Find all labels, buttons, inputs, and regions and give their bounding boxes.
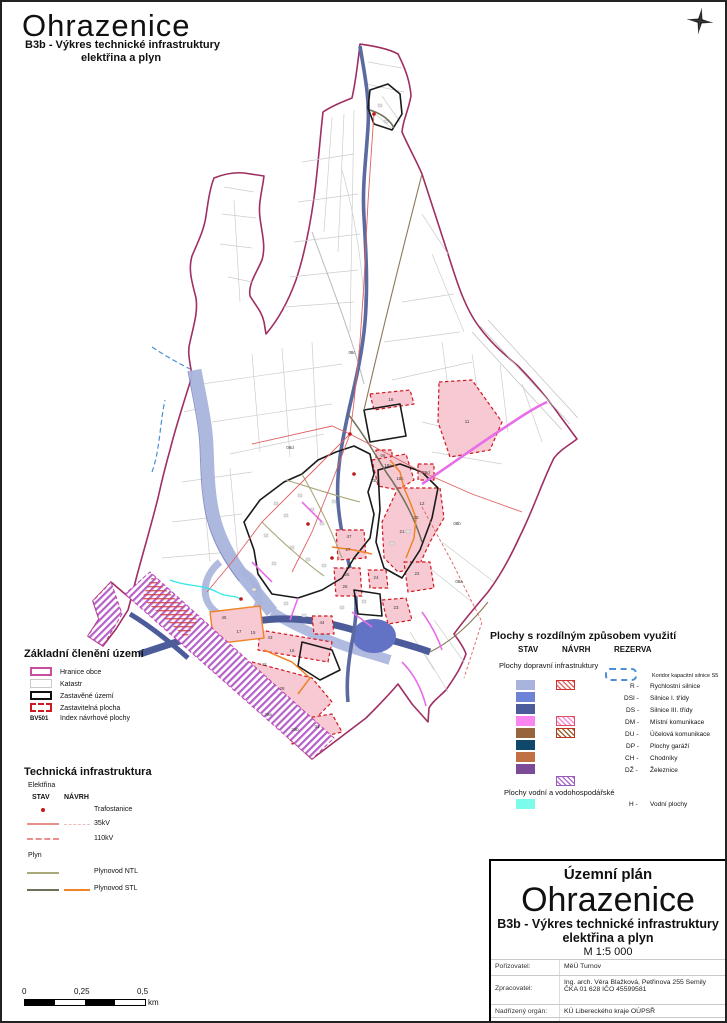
swatch-dsi-stav <box>516 692 535 702</box>
titleblock-scale: M 1:5 000 <box>491 946 725 958</box>
row-label: Pořizovatel: <box>491 960 559 975</box>
corridor-s5-swatch <box>605 668 637 681</box>
scalebar-05: 0,5 <box>137 987 148 996</box>
svg-text:25: 25 <box>345 572 350 577</box>
code-dz: DŽ - <box>625 767 638 774</box>
zastavitelna-plocha-swatch <box>30 703 52 712</box>
row-value: Zastupitelstvo Ohrazenice <box>559 1018 725 1023</box>
row-value: MěÚ Turnov <box>559 960 725 975</box>
svg-text:43: 43 <box>268 635 273 640</box>
scalebar-seg <box>85 1000 115 1005</box>
svg-text:15: 15 <box>251 630 256 635</box>
scalebar-seg <box>55 1000 85 1005</box>
svg-text:06: 06 <box>381 453 386 458</box>
swatch-r-navrh <box>556 680 575 690</box>
code-r: R - <box>630 683 639 690</box>
line-ntl <box>27 872 59 874</box>
corridor-s5-label: Koridor kapacitní silnice S5 <box>652 673 718 679</box>
label-dz: Železnice <box>650 767 678 774</box>
tech-col-stav: STAV <box>32 794 50 801</box>
code-dp: DP - <box>626 743 639 750</box>
trafostanice-symbol <box>41 808 45 812</box>
svg-text:18c: 18c <box>396 476 404 481</box>
areas-col-navrh: NÁVRH <box>562 645 590 654</box>
row-value-line2: ČKA 01 628 IČO 45599581 <box>564 986 725 993</box>
scalebar-seg <box>115 1000 145 1005</box>
zastavene-uzemi-swatch <box>30 691 52 700</box>
svg-text:47: 47 <box>347 534 352 539</box>
code-du: DU - <box>625 731 638 738</box>
plan-sheet: Ohrazenice B3b - Výkres technické infras… <box>0 0 727 1023</box>
swatch-dp-stav <box>516 740 535 750</box>
table-row: Nadřízený orgán: KÚ Libereckého kraje OÚ… <box>491 1004 725 1017</box>
tech-col-navrh: NÁVRH <box>64 794 89 801</box>
label-35kv: 35kV <box>94 820 110 827</box>
areas-col-stav: STAV <box>518 645 538 654</box>
code-dm: DM - <box>625 719 639 726</box>
zastavene-uzemi-label: Zastavěné území <box>60 693 114 700</box>
row-label: Zpracovatel: <box>491 976 559 1004</box>
svg-text:08c: 08c <box>348 350 356 355</box>
scalebar-seg <box>25 1000 55 1005</box>
swatch-r-stav <box>516 680 535 690</box>
swatch-du-stav <box>516 728 535 738</box>
line-35kv-navrh <box>64 824 90 825</box>
areas-section-transport: Plochy dopravní infrastruktury <box>499 661 598 670</box>
table-row: Schvalující orgán: Zastupitelstvo Ohraze… <box>491 1017 725 1023</box>
scalebar <box>24 999 146 1006</box>
swatch-dz-stav <box>516 764 535 774</box>
svg-text:16: 16 <box>290 648 295 653</box>
svg-text:18a: 18a <box>384 463 392 468</box>
row-value: KÚ Libereckého kraje OÚPSŘ <box>559 1005 725 1017</box>
legend-basic-title: Základní členění území <box>24 648 144 660</box>
code-ds: DS - <box>626 707 639 714</box>
legend-areas-title: Plochy s rozdílným způsobem využití <box>490 630 676 642</box>
label-ch: Chodníky <box>650 755 677 762</box>
swatch-dm-stav <box>516 716 535 726</box>
titleblock-town: Ohrazenice <box>491 883 725 917</box>
label-110kv: 110kV <box>94 835 113 842</box>
hranice-obce-label: Hranice obce <box>60 669 101 676</box>
svg-text:31: 31 <box>315 724 320 729</box>
svg-text:21: 21 <box>400 529 405 534</box>
swatch-ch-stav <box>516 752 535 762</box>
legend-tech-title: Technická infrastruktura <box>24 766 152 778</box>
scalebar-unit: km <box>148 998 159 1007</box>
swatch-dm-navrh <box>556 716 575 726</box>
index-navrhove-plochy-code: BV501 <box>30 716 48 722</box>
hranice-obce-swatch <box>30 667 52 676</box>
scalebar-025: 0,25 <box>74 987 90 996</box>
svg-text:08b: 08b <box>453 521 461 526</box>
trafostanice-label: Trafostanice <box>94 806 132 813</box>
swatch-ds-stav <box>516 704 535 714</box>
code-h: H - <box>629 801 638 808</box>
svg-text:17: 17 <box>237 629 242 634</box>
katastr-swatch <box>30 679 52 688</box>
svg-text:42: 42 <box>262 662 267 667</box>
row-value-line1: Ing. arch. Věra Blažková, Petřinova 255 … <box>564 979 725 986</box>
label-du: Účelová komunikace <box>650 731 710 738</box>
row-label: Nadřízený orgán: <box>491 1005 559 1017</box>
areas-col-rezerva: REZERVA <box>614 645 652 654</box>
svg-text:23: 23 <box>394 605 399 610</box>
svg-text:28: 28 <box>280 686 285 691</box>
katastr-label: Katastr <box>60 681 82 688</box>
label-r: Rychlostní silnice <box>650 683 700 690</box>
scalebar-0: 0 <box>22 987 26 996</box>
label-dp: Plochy garáží <box>650 743 689 750</box>
label-ds: Silnice III. třídy <box>650 707 693 714</box>
svg-text:13b: 13b <box>370 478 378 483</box>
title-block: Územní plán Ohrazenice B3b - Výkres tech… <box>489 859 725 1023</box>
plyn-group-label: Plyn <box>28 852 42 859</box>
svg-text:08d: 08d <box>286 445 294 450</box>
table-row: Zpracovatel: Ing. arch. Věra Blažková, P… <box>491 975 725 1004</box>
areas-section-water: Plochy vodní a vodohospodářské <box>504 788 615 797</box>
svg-text:45: 45 <box>222 615 227 620</box>
svg-text:29a: 29a <box>264 712 272 717</box>
titleblock-subtitle-2: elektřina a plyn <box>491 931 725 945</box>
svg-text:20: 20 <box>414 515 419 520</box>
svg-text:27: 27 <box>346 547 351 552</box>
label-h: Vodní plochy <box>650 801 687 808</box>
label-dm: Místní komunikace <box>650 719 704 726</box>
svg-text:29b: 29b <box>291 727 299 732</box>
swatch-dz-navrh <box>556 776 575 786</box>
titleblock-subtitle-1: B3b - Výkres technické infrastruktury <box>491 917 725 931</box>
svg-text:26: 26 <box>343 584 348 589</box>
line-35kv-stav <box>27 823 59 825</box>
elektrina-group-label: Elektřina <box>28 782 55 789</box>
svg-text:11: 11 <box>465 419 470 424</box>
row-value: Ing. arch. Věra Blažková, Petřinova 255 … <box>559 976 725 1004</box>
code-dsi: DSI - <box>624 695 639 702</box>
code-ch: CH - <box>625 755 638 762</box>
titleblock-table: Pořizovatel: MěÚ Turnov Zpracovatel: Ing… <box>491 959 725 1023</box>
index-navrhove-plochy-label: Index návrhové plochy <box>60 715 130 722</box>
label-stl: Plynovod STL <box>94 885 138 892</box>
table-row: Pořizovatel: MěÚ Turnov <box>491 959 725 975</box>
svg-text:22: 22 <box>415 571 420 576</box>
line-110kv-stav <box>27 838 59 840</box>
svg-text:29d: 29d <box>422 470 430 475</box>
road-area-blob <box>352 619 396 653</box>
swatch-h-stav <box>516 799 535 809</box>
svg-text:08a: 08a <box>455 579 463 584</box>
svg-text:12: 12 <box>420 501 425 506</box>
svg-text:18: 18 <box>389 397 394 402</box>
label-dsi: Silnice I. třídy <box>650 695 689 702</box>
zastavitelna-plocha-label: Zastavitelná plocha <box>60 705 120 712</box>
label-ntl: Plynovod NTL <box>94 868 138 875</box>
line-stl-navrh <box>64 889 90 891</box>
row-label: Schvalující orgán: <box>491 1018 559 1023</box>
svg-text:24: 24 <box>374 575 379 580</box>
line-stl-stav <box>27 889 59 891</box>
swatch-du-navrh <box>556 728 575 738</box>
svg-text:44: 44 <box>320 620 325 625</box>
